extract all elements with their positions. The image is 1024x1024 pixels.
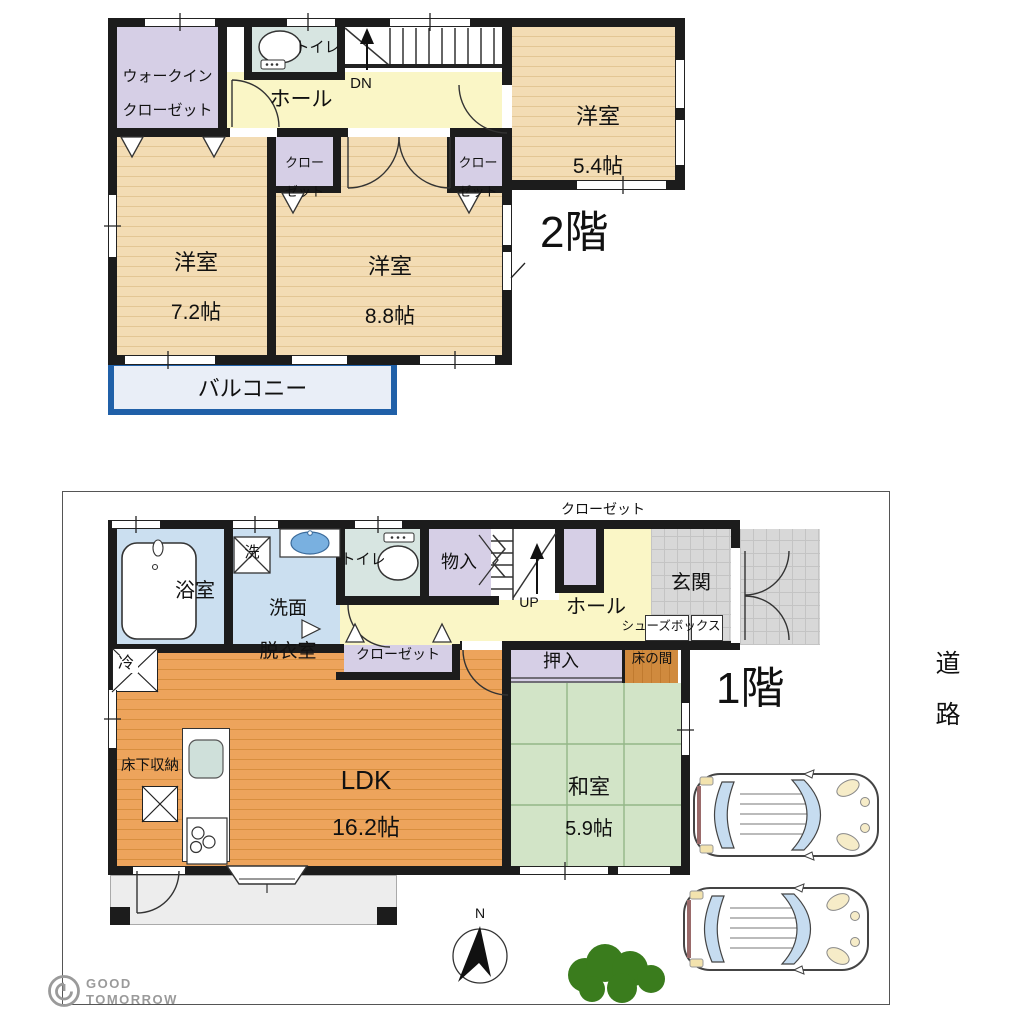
room-label-bedroom54: 洋室 5.4帖 bbox=[540, 80, 656, 203]
window bbox=[233, 520, 278, 529]
ldk-size: 16.2帖 bbox=[308, 814, 424, 840]
window bbox=[420, 355, 495, 365]
logo-line2: TOMORROW bbox=[86, 992, 178, 1008]
door-opening bbox=[230, 128, 277, 137]
closet-a-line1: クロー bbox=[276, 156, 333, 171]
wall bbox=[108, 18, 117, 365]
washroom-line1: 洗面 bbox=[240, 598, 336, 619]
underfloor-box bbox=[142, 786, 178, 822]
window bbox=[675, 60, 685, 108]
bedroom88-size: 8.8帖 bbox=[332, 305, 448, 329]
window bbox=[520, 866, 608, 875]
logo-text: GOOD TOMORROW bbox=[86, 976, 178, 1009]
room-label-hall-2f: ホール bbox=[258, 88, 344, 112]
wall bbox=[218, 27, 227, 128]
washitsu-name: 和室 bbox=[534, 776, 644, 800]
wall bbox=[244, 72, 345, 80]
wall bbox=[555, 585, 600, 593]
window bbox=[681, 703, 690, 755]
wall bbox=[429, 596, 499, 605]
closet-label-a: クロー ゼット bbox=[276, 141, 333, 214]
washroom-line2: 脱衣室 bbox=[240, 641, 336, 662]
window bbox=[125, 355, 215, 365]
logo-line1: GOOD bbox=[86, 976, 178, 992]
wall bbox=[108, 520, 740, 529]
window bbox=[287, 18, 335, 27]
room-label-bedroom72: 洋室 7.2帖 bbox=[138, 226, 254, 349]
washer-label: 洗 bbox=[241, 545, 263, 562]
room-label-oshiire: 押入 bbox=[528, 651, 594, 671]
closet-label-b: クロー ゼット bbox=[453, 141, 503, 214]
fridge-label: 冷 bbox=[114, 655, 138, 673]
washitsu-size: 5.9帖 bbox=[534, 818, 644, 841]
wall bbox=[267, 128, 276, 364]
bedroom88-name: 洋室 bbox=[332, 255, 448, 280]
shoebox-label: シューズボックス bbox=[612, 619, 730, 633]
room-label-bedroom88: 洋室 8.8帖 bbox=[332, 230, 448, 353]
room-label-washitsu: 和室 5.9帖 bbox=[534, 758, 644, 859]
north-label: N bbox=[468, 906, 492, 922]
window bbox=[675, 120, 685, 165]
balcony-label: バルコニー bbox=[160, 377, 345, 402]
closet-a-line2: ゼット bbox=[276, 185, 333, 200]
back-door bbox=[133, 866, 185, 875]
wic-line2: クローゼット bbox=[117, 103, 218, 120]
kitchen-counter bbox=[182, 728, 230, 862]
floor-plan-canvas: 道路 ウォークイン クローゼット トイレ DN ホール bbox=[0, 0, 1024, 1024]
room-label-ldk: LDK 16.2帖 bbox=[308, 748, 424, 858]
window bbox=[390, 18, 470, 27]
window bbox=[618, 866, 670, 875]
window bbox=[108, 195, 117, 257]
wall bbox=[452, 644, 460, 680]
room-label-wic: ウォークイン クローゼット bbox=[117, 52, 218, 137]
closet-by-stairs bbox=[564, 529, 600, 585]
door-opening bbox=[348, 128, 450, 137]
stairs-dn-label: DN bbox=[343, 76, 379, 93]
closet-b-line2: ゼット bbox=[453, 185, 503, 200]
closet-top-label: クローゼット bbox=[548, 502, 658, 518]
wall bbox=[502, 18, 512, 365]
room-label-bath: 浴室 bbox=[160, 580, 230, 603]
bedroom72-name: 洋室 bbox=[138, 251, 254, 276]
vestibule-2f bbox=[227, 27, 244, 72]
wall bbox=[502, 650, 511, 866]
wall bbox=[336, 596, 429, 605]
stairs-1f-area bbox=[491, 529, 559, 600]
floor2-label: 2階 bbox=[540, 208, 660, 258]
room-label-tokonoma: 床の間 bbox=[624, 651, 680, 666]
wall bbox=[460, 641, 740, 650]
bedroom54-name: 洋室 bbox=[540, 105, 656, 130]
wall bbox=[681, 641, 690, 875]
road-label: 道路 bbox=[928, 650, 964, 752]
bedroom72-size: 7.2帖 bbox=[138, 301, 254, 325]
wic-line1: ウォークイン bbox=[117, 69, 218, 86]
terrace-post bbox=[377, 907, 397, 925]
terrace bbox=[110, 875, 397, 925]
ldk-name: LDK bbox=[308, 766, 424, 795]
door-opening bbox=[502, 85, 512, 128]
entrance-porch bbox=[740, 529, 820, 645]
room-label-hall-1f: ホール bbox=[553, 596, 639, 619]
window bbox=[112, 520, 160, 529]
room-label-monoire: 物入 bbox=[424, 552, 494, 572]
window bbox=[355, 520, 402, 529]
window bbox=[108, 690, 117, 748]
window bbox=[502, 205, 512, 245]
wall bbox=[555, 529, 564, 591]
door-opening bbox=[462, 641, 502, 650]
wall bbox=[596, 529, 604, 593]
room-label-toilet-1f: トイレ bbox=[340, 552, 386, 569]
floor1-label: 1階 bbox=[716, 664, 836, 714]
terrace-post bbox=[110, 907, 130, 925]
closet-b-line1: クロー bbox=[453, 156, 503, 171]
wall bbox=[336, 672, 460, 680]
window bbox=[292, 355, 347, 365]
entrance-door-opening bbox=[731, 548, 740, 643]
room-label-genkan: 玄関 bbox=[648, 572, 734, 595]
window bbox=[145, 18, 215, 27]
room-label-washroom: 洗面 脱衣室 bbox=[240, 577, 336, 684]
room-label-toilet-2f: トイレ bbox=[294, 40, 340, 57]
closet-hall-label: クローゼット bbox=[346, 647, 450, 663]
wall bbox=[333, 137, 341, 193]
stairs-2f-area bbox=[345, 27, 502, 66]
bedroom54-size: 5.4帖 bbox=[540, 155, 656, 179]
underfloor-label: 床下収納 bbox=[112, 758, 188, 774]
window bbox=[502, 252, 512, 290]
stairs-up-label: UP bbox=[512, 595, 546, 611]
